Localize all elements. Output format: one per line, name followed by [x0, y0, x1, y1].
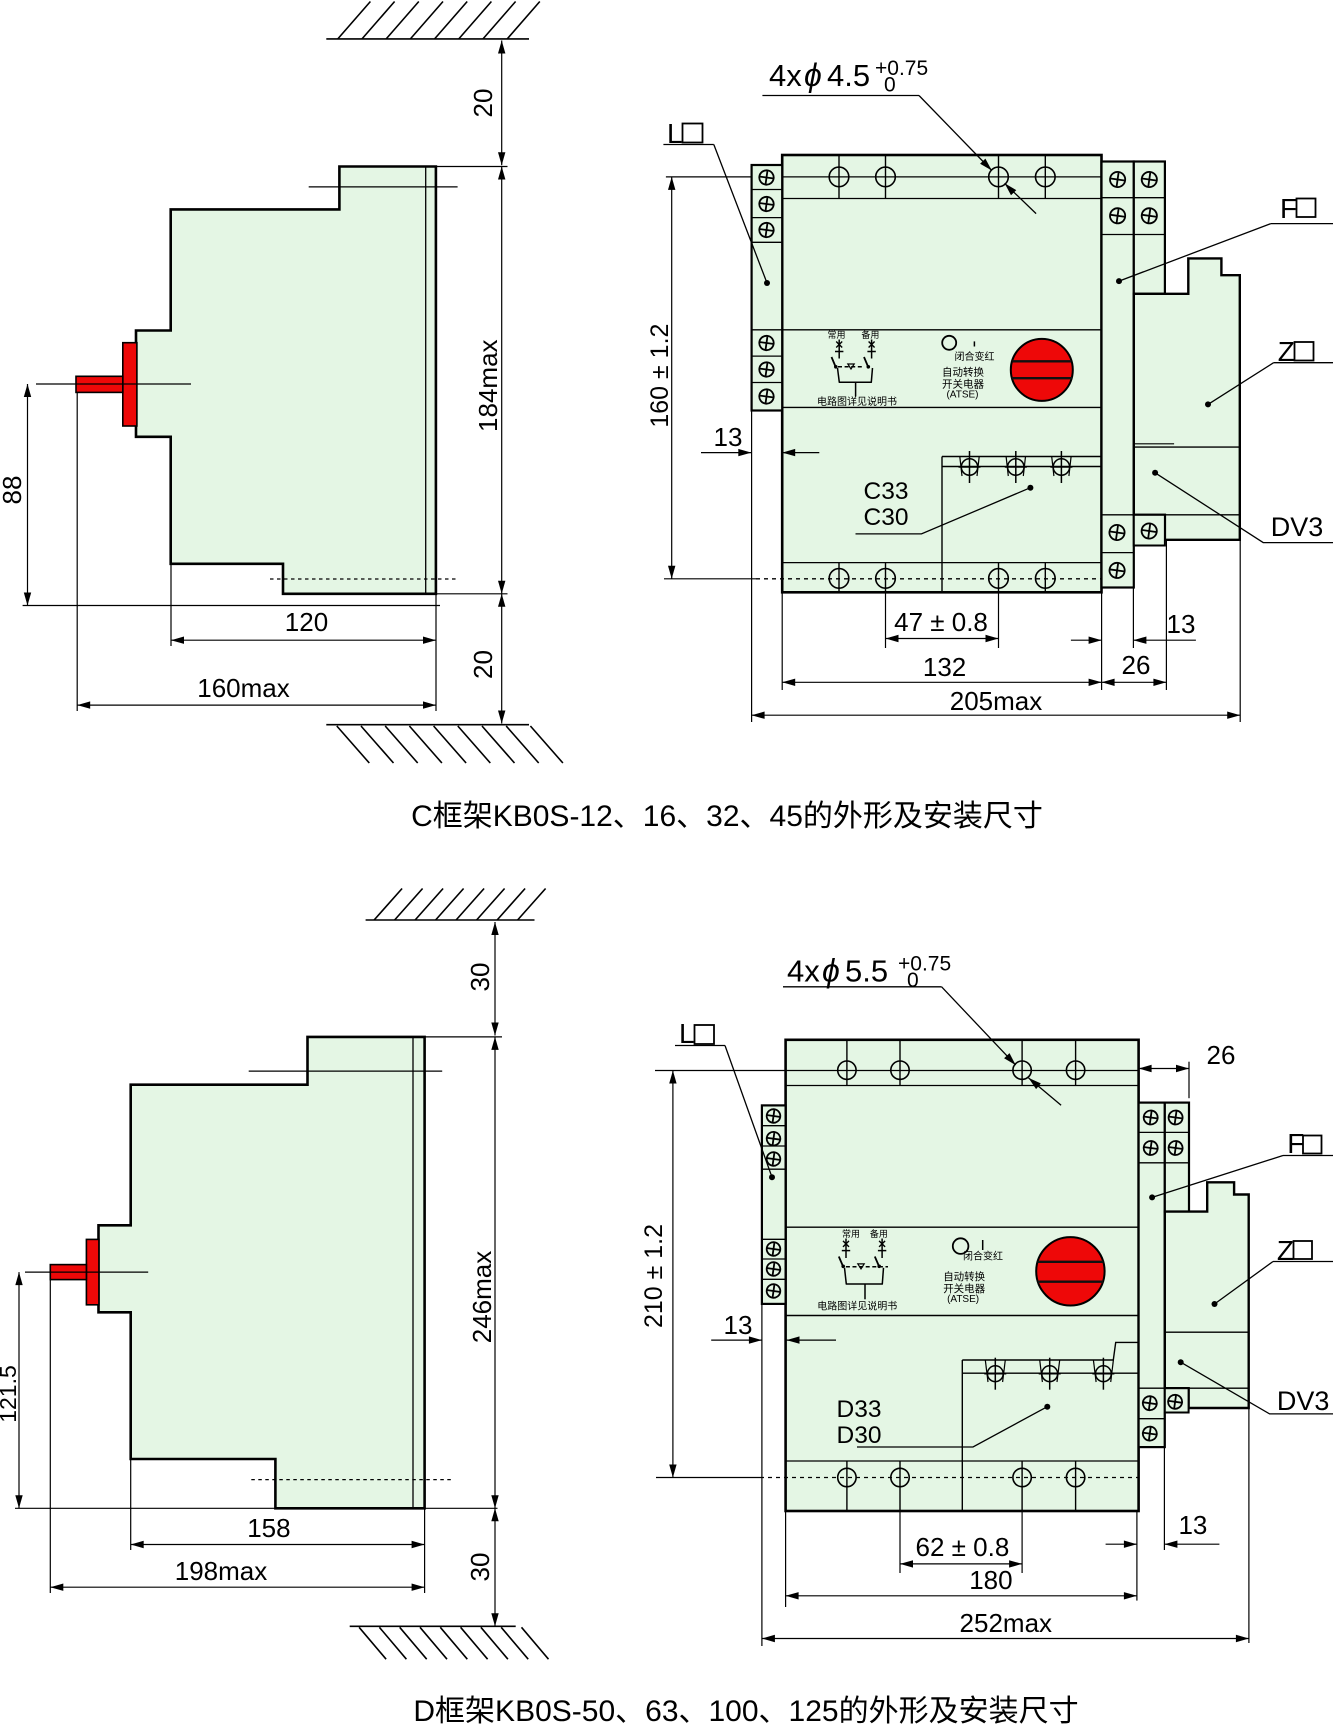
svg-text:30: 30 — [465, 1553, 495, 1582]
svg-text:158: 158 — [247, 1513, 290, 1543]
svg-text:0: 0 — [907, 969, 919, 992]
svg-text:ϕ: ϕ — [822, 953, 840, 989]
svg-text:C框架KB0S-12、16、32、45的外形及安装尺寸: C框架KB0S-12、16、32、45的外形及安装尺寸 — [411, 800, 1043, 833]
svg-text:闭合变红: 闭合变红 — [963, 1250, 1003, 1263]
svg-text:L: L — [679, 1018, 695, 1049]
svg-text:常用: 常用 — [827, 329, 845, 340]
svg-text:+0.75: +0.75 — [875, 57, 928, 80]
svg-text:13: 13 — [714, 422, 743, 452]
svg-text:(ATSE): (ATSE) — [946, 390, 978, 401]
svg-text:D框架KB0S-50、63、100、125的外形及安装尺寸: D框架KB0S-50、63、100、125的外形及安装尺寸 — [413, 1695, 1078, 1724]
svg-text:DV3: DV3 — [1271, 512, 1324, 542]
svg-text:121.5: 121.5 — [0, 1365, 21, 1423]
svg-text:13: 13 — [1167, 609, 1196, 639]
svg-text:47 ± 0.8: 47 ± 0.8 — [894, 607, 988, 637]
svg-text:C30: C30 — [864, 504, 909, 531]
svg-text:电路图详见说明书: 电路图详见说明书 — [817, 395, 897, 408]
svg-text:4x: 4x — [787, 954, 820, 989]
svg-text:198max: 198max — [175, 1556, 268, 1586]
svg-text:4.5: 4.5 — [827, 58, 870, 93]
svg-text:C33: C33 — [864, 478, 909, 505]
svg-text:62 ± 0.8: 62 ± 0.8 — [916, 1532, 1010, 1562]
svg-text:252max: 252max — [960, 1608, 1053, 1638]
svg-text:20: 20 — [468, 89, 498, 118]
svg-text:246max: 246max — [467, 1251, 497, 1344]
svg-text:D30: D30 — [837, 1422, 882, 1449]
svg-text:88: 88 — [0, 476, 27, 505]
svg-text:F: F — [1280, 193, 1297, 224]
svg-text:13: 13 — [724, 1310, 753, 1340]
svg-text:(ATSE): (ATSE) — [947, 1294, 979, 1305]
svg-text:13: 13 — [1178, 1510, 1207, 1540]
svg-text:ϕ: ϕ — [804, 57, 822, 93]
svg-text:常用: 常用 — [842, 1228, 860, 1239]
svg-text:26: 26 — [1122, 650, 1151, 680]
svg-text:205max: 205max — [950, 686, 1043, 716]
svg-text:184max: 184max — [473, 339, 503, 432]
svg-text:闭合变红: 闭合变红 — [955, 350, 995, 363]
svg-text:自动转换: 自动转换 — [943, 1270, 985, 1283]
svg-text:0: 0 — [884, 74, 896, 97]
svg-text:180: 180 — [969, 1565, 1012, 1595]
svg-text:5.5: 5.5 — [845, 954, 888, 989]
svg-text:自动转换: 自动转换 — [942, 366, 984, 379]
svg-text:备用: 备用 — [861, 329, 879, 340]
svg-text:160max: 160max — [197, 673, 290, 703]
svg-text:备用: 备用 — [870, 1228, 888, 1239]
svg-text:30: 30 — [465, 963, 495, 992]
svg-text:4x: 4x — [769, 58, 802, 93]
svg-text:电路图详见说明书: 电路图详见说明书 — [817, 1300, 897, 1313]
svg-text:160 ± 1.2: 160 ± 1.2 — [646, 324, 674, 428]
svg-text:210 ± 1.2: 210 ± 1.2 — [640, 1224, 668, 1328]
svg-text:F: F — [1287, 1128, 1304, 1159]
svg-text:132: 132 — [923, 652, 966, 682]
svg-text:26: 26 — [1207, 1040, 1236, 1070]
svg-text:+0.75: +0.75 — [898, 953, 951, 976]
svg-text:D33: D33 — [837, 1396, 882, 1423]
svg-text:20: 20 — [468, 650, 498, 679]
svg-text:120: 120 — [285, 607, 328, 637]
svg-text:DV3: DV3 — [1277, 1386, 1330, 1416]
